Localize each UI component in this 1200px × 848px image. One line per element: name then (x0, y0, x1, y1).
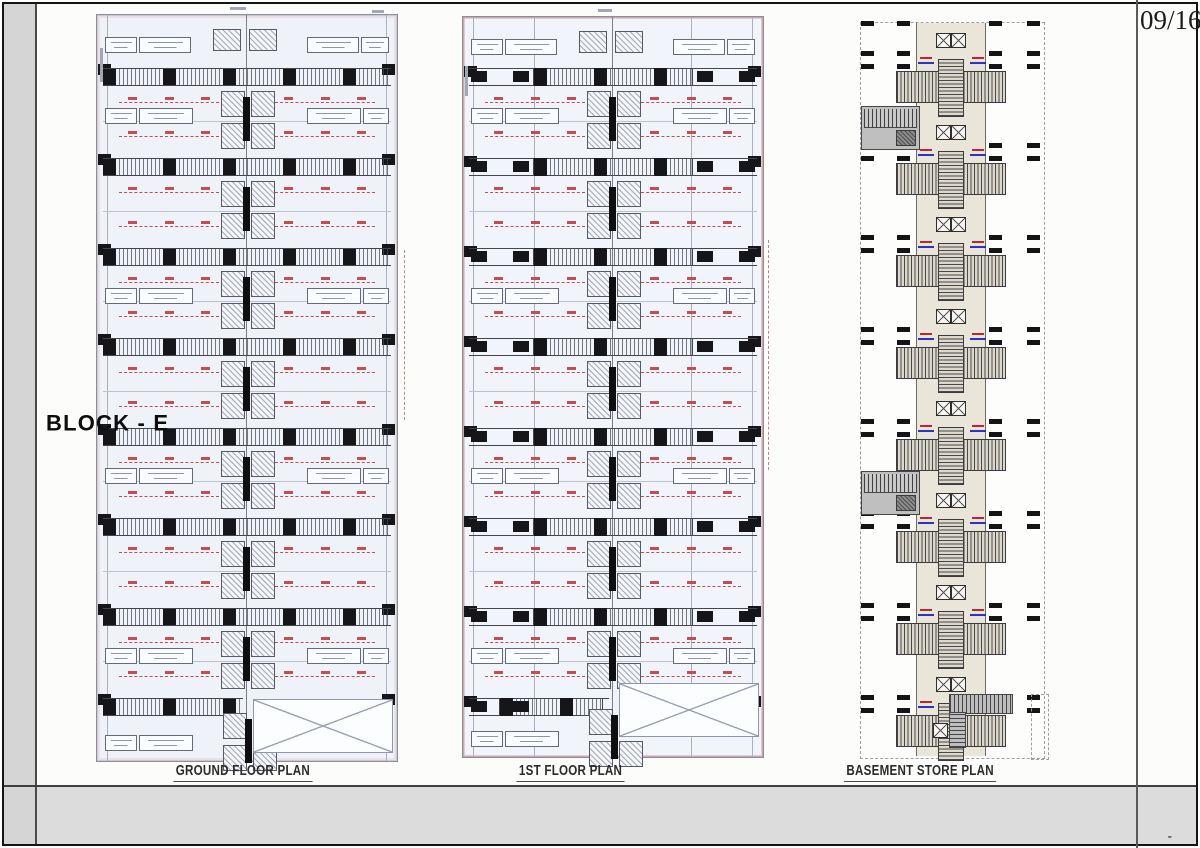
unit-label-box (139, 648, 193, 664)
stair-box (587, 271, 611, 297)
stair-core-cluster (587, 541, 639, 597)
stair-box (587, 181, 611, 207)
column-blob (471, 701, 487, 712)
stair-box (251, 393, 275, 419)
column-blob (513, 161, 529, 172)
unit-label-box (105, 648, 137, 664)
lift-x-box (951, 125, 966, 140)
stair-box (251, 573, 275, 599)
lift-x-box (936, 33, 951, 48)
unit-label-box (307, 37, 359, 53)
lift-x-box (951, 493, 966, 508)
wing-stair-run (864, 109, 917, 128)
core-wall (609, 187, 616, 231)
dimension-line (641, 366, 741, 373)
stair-box (617, 91, 641, 117)
wall-hatch (533, 248, 693, 266)
stair-core-cluster (221, 91, 273, 147)
stair-box (251, 303, 275, 329)
store-module (896, 209, 1004, 301)
column-tick (1027, 21, 1040, 26)
unit-label-box (471, 468, 503, 484)
stair-box (587, 483, 611, 509)
unit-label-box (729, 468, 755, 484)
wall-hatch (533, 518, 693, 536)
unit-label-box (139, 735, 193, 751)
dimension-line (485, 276, 585, 283)
core-wall (609, 547, 616, 591)
unit-label-box (673, 108, 727, 124)
lift-x-box (933, 723, 948, 738)
page-number-tick: - (1168, 828, 1172, 844)
annotation-text-blob (372, 10, 384, 13)
void-cross-area (619, 683, 759, 737)
dimension-line (641, 456, 741, 463)
unit-label-box (729, 648, 755, 664)
dimension-line (641, 130, 741, 137)
stair-box (587, 451, 611, 477)
stair-box (617, 303, 641, 329)
unit-label-box (105, 288, 137, 304)
core-wall (243, 97, 250, 141)
store-label (918, 609, 934, 616)
stair-box (587, 91, 611, 117)
basement-store-plan-caption: BASEMENT STORE PLAN (843, 763, 998, 780)
store-label (918, 701, 934, 708)
stair-box (221, 181, 245, 207)
stair-wing (861, 471, 920, 515)
wall-band (469, 698, 609, 716)
stair-cross-vertical (938, 151, 964, 209)
dimension-line (485, 96, 585, 103)
stair-box (617, 483, 641, 509)
basement-store-plan (860, 22, 1045, 759)
lift-x-box (936, 677, 951, 692)
core-wall (243, 277, 250, 321)
column-blob (513, 341, 529, 352)
lift-x-box (951, 33, 966, 48)
lift-x-box (936, 585, 951, 600)
dimension-line (485, 130, 585, 137)
stair-box (587, 573, 611, 599)
unit-label-box (471, 39, 503, 55)
unit-label-box (673, 468, 727, 484)
column-blob (471, 251, 487, 262)
stair-box (587, 213, 611, 239)
column-blob (739, 341, 755, 352)
hatched-wall-band (103, 608, 391, 626)
stair-box (221, 573, 245, 599)
dimension-line (641, 546, 741, 553)
column-blob (471, 431, 487, 442)
dimension-line (485, 546, 585, 553)
unit-label-box (673, 288, 727, 304)
stair-box (251, 271, 275, 297)
lift-x-box (936, 309, 951, 324)
wall-hatch (533, 338, 693, 356)
store-label (918, 241, 934, 248)
first-floor-plan (462, 16, 764, 758)
stair-box (223, 713, 247, 739)
stair-box (587, 393, 611, 419)
column-blob (739, 431, 755, 442)
stair-box (251, 483, 275, 509)
column-tick (861, 21, 874, 26)
dimension-line (119, 580, 219, 587)
ground-floor-plan (96, 14, 398, 762)
column-blob (471, 161, 487, 172)
hatched-wall-band (103, 518, 391, 536)
stair-box (587, 303, 611, 329)
sheet-scan: GROUND FLOOR PLAN 1ST FLOOR PLAN BASEMEN… (0, 0, 1200, 848)
stair-core-cluster (221, 451, 273, 507)
stair-box (587, 663, 611, 689)
lift-x-box (936, 125, 951, 140)
unit-label-box (505, 648, 559, 664)
column-blob (697, 251, 713, 262)
stair-box (251, 213, 275, 239)
wall-band (469, 158, 757, 176)
column-blob (739, 161, 755, 172)
dimension-line (641, 186, 741, 193)
dimension-line (275, 310, 375, 317)
unit-label-box (729, 108, 755, 124)
stair-box (221, 91, 245, 117)
stair-box (221, 541, 245, 567)
dimension-line (275, 580, 375, 587)
store-module (896, 577, 1004, 669)
dimension-line (485, 490, 585, 497)
unit-label-box (729, 288, 755, 304)
column-blob (513, 431, 529, 442)
dimension-line (275, 490, 375, 497)
unit-label-box (471, 731, 503, 747)
wing-duct-box (896, 495, 916, 511)
grid-guide-line (691, 17, 692, 757)
unit-label-box (361, 37, 389, 53)
first-floor-plan-caption: 1ST FLOOR PLAN (498, 763, 643, 780)
vertical-dimension-string (768, 240, 769, 470)
wall-hatch (533, 158, 693, 176)
stair-box (221, 213, 245, 239)
block-title: BLOCK - E (46, 410, 169, 436)
store-label (918, 57, 934, 64)
core-wall (243, 367, 250, 411)
unit-label-box (505, 468, 559, 484)
dimension-line (485, 366, 585, 373)
lift-x-box (951, 585, 966, 600)
stair-box (587, 123, 611, 149)
store-module (896, 25, 1004, 117)
unit-label-box (139, 288, 193, 304)
dimension-line (275, 186, 375, 193)
stair-core-cluster (587, 361, 639, 417)
lift-x-box (951, 309, 966, 324)
dimension-line (485, 400, 585, 407)
dimension-line (275, 456, 375, 463)
stair-core-cluster (221, 271, 273, 327)
store-label (970, 241, 986, 248)
stair-wing (861, 106, 920, 150)
column-blob (513, 521, 529, 532)
core-wall (609, 277, 616, 321)
ground-floor-plan-caption: GROUND FLOOR PLAN (170, 763, 315, 780)
stair-box (251, 631, 275, 657)
stair-box (251, 663, 275, 689)
unit-label-box (105, 37, 137, 53)
stair-box (617, 631, 641, 657)
dimension-line (119, 670, 219, 677)
column-blob (739, 611, 755, 622)
unit-label-box (105, 735, 137, 751)
dimension-line (119, 490, 219, 497)
unit-label-box (363, 648, 389, 664)
dimension-line (119, 366, 219, 373)
stair-box (221, 303, 245, 329)
stair-box (221, 123, 245, 149)
stair-box (617, 213, 641, 239)
unit-label-box (363, 288, 389, 304)
dimension-line (641, 276, 741, 283)
stair-cross-vertical (938, 427, 964, 485)
unit-label-box (363, 468, 389, 484)
stair-cross-vertical (938, 59, 964, 117)
dimension-line (119, 276, 219, 283)
unit-label-box (505, 39, 557, 55)
dimension-line (641, 636, 741, 643)
stair-cross-vertical (938, 243, 964, 301)
stair-box (617, 451, 641, 477)
wing-stair-run (864, 474, 917, 493)
stair-box (617, 393, 641, 419)
core-wall (243, 547, 250, 591)
dimension-line (275, 96, 375, 103)
unit-label-box (673, 648, 727, 664)
column-blob (697, 431, 713, 442)
store-module (896, 301, 1004, 393)
unit-label-box (363, 108, 389, 124)
unit-label-box (139, 468, 193, 484)
hatched-wall-band (103, 338, 391, 356)
dimension-line (119, 400, 219, 407)
title-block-top-rule (4, 785, 1196, 787)
column-blob (697, 341, 713, 352)
core-wall (611, 715, 618, 759)
unit-label-box (105, 108, 137, 124)
hatched-wall-band (103, 158, 391, 176)
unit-label-box (471, 108, 503, 124)
dimension-line (641, 580, 741, 587)
unit-label-box (505, 108, 559, 124)
store-label (970, 609, 986, 616)
dimension-line (485, 670, 585, 677)
store-label (970, 57, 986, 64)
annotation-text-blob (100, 48, 103, 82)
column-blob (739, 251, 755, 262)
unit-label-box (139, 108, 193, 124)
stair-box (251, 181, 275, 207)
unit-label-box (307, 288, 361, 304)
store-label (918, 425, 934, 432)
stair-box (221, 361, 245, 387)
lift-x-box (936, 217, 951, 232)
stair-cross-vertical (938, 611, 964, 669)
unit-label-box (307, 648, 361, 664)
stair-box (213, 29, 241, 51)
basement-stair-landing (949, 694, 1013, 714)
dimension-line (119, 220, 219, 227)
dimension-line (641, 310, 741, 317)
stair-box (251, 541, 275, 567)
dimension-line (119, 546, 219, 553)
store-label (918, 517, 934, 524)
stair-core-cluster (221, 181, 273, 237)
hatched-wall-band (103, 698, 243, 716)
dimension-line (119, 130, 219, 137)
grid-guide-line (534, 17, 535, 757)
stair-box (587, 361, 611, 387)
vertical-dimension-string (404, 250, 405, 420)
void-cross-area (253, 699, 393, 753)
dimension-line (641, 670, 741, 677)
unit-label-box (471, 648, 503, 664)
wall-band (469, 518, 757, 536)
hatched-wall-band (103, 248, 391, 266)
unit-label-box (505, 731, 559, 747)
column-blob (697, 161, 713, 172)
wall-band (469, 608, 757, 626)
hatched-wall-band (103, 68, 391, 86)
boundary-step (1031, 694, 1049, 760)
stair-box (617, 123, 641, 149)
stair-core-cluster (587, 451, 639, 507)
dimension-line (275, 366, 375, 373)
dimension-line (275, 546, 375, 553)
annotation-text-blob (598, 9, 612, 12)
unit-label-box (471, 288, 503, 304)
stair-box (221, 393, 245, 419)
stair-core-cluster (587, 181, 639, 237)
lift-x-box (936, 493, 951, 508)
column-blob (513, 251, 529, 262)
dimension-line (641, 96, 741, 103)
dimension-line (485, 186, 585, 193)
unit-label-box (505, 288, 559, 304)
stair-box (221, 451, 245, 477)
stair-box (617, 573, 641, 599)
stair-box (221, 631, 245, 657)
dimension-line (485, 220, 585, 227)
lift-x-box (951, 401, 966, 416)
stair-box (617, 541, 641, 567)
title-block (4, 787, 1196, 844)
store-label (970, 425, 986, 432)
dimension-line (641, 400, 741, 407)
column-blob (471, 521, 487, 532)
dimension-line (275, 276, 375, 283)
column-blob (471, 341, 487, 352)
column-blob (697, 521, 713, 532)
core-wall (609, 457, 616, 501)
core-wall (609, 97, 616, 141)
column-tick-column (1027, 23, 1040, 758)
caption-text: GROUND FLOOR PLAN (173, 763, 312, 782)
lift-x-box (951, 677, 966, 692)
stair-box (617, 361, 641, 387)
binding-margin-strip (4, 4, 37, 844)
page-number: 09/16 (1140, 5, 1198, 36)
dimension-line (119, 96, 219, 103)
wall-hatch (533, 608, 693, 626)
unit-label-box (307, 468, 361, 484)
core-wall (245, 719, 252, 763)
stair-box (251, 91, 275, 117)
store-label (970, 149, 986, 156)
annotation-text-blob (230, 7, 246, 10)
wing-duct-box (896, 130, 916, 146)
stair-box (251, 451, 275, 477)
core-wall (243, 637, 250, 681)
column-tick-column (464, 17, 477, 757)
stair-core-cluster (221, 361, 273, 417)
caption-text: BASEMENT STORE PLAN (844, 763, 996, 782)
stair-box (587, 631, 611, 657)
store-label (918, 149, 934, 156)
wall-band (469, 248, 757, 266)
stair-core-cluster (221, 631, 273, 687)
stair-box (615, 31, 643, 53)
dimension-line (275, 670, 375, 677)
store-label (970, 517, 986, 524)
stair-box (251, 123, 275, 149)
caption-text: 1ST FLOOR PLAN (516, 763, 624, 782)
core-wall (243, 187, 250, 231)
dimension-line (119, 636, 219, 643)
title-block-divider (1136, 0, 1138, 848)
dimension-line (275, 636, 375, 643)
dimension-line (641, 220, 741, 227)
stair-core-cluster (221, 541, 273, 597)
unit-label-box (307, 108, 361, 124)
column-blob (739, 521, 755, 532)
dimension-line (485, 636, 585, 643)
stair-box (587, 541, 611, 567)
lift-x-box (951, 217, 966, 232)
core-wall (609, 367, 616, 411)
stair-cross-vertical (938, 335, 964, 393)
wall-band (469, 338, 757, 356)
dimension-line (119, 310, 219, 317)
lift-x-box (936, 401, 951, 416)
column-blob (471, 611, 487, 622)
unit-label-box (139, 37, 191, 53)
stair-box (251, 361, 275, 387)
unit-label-box (105, 468, 137, 484)
unit-label-box (727, 39, 755, 55)
dimension-line (119, 186, 219, 193)
wall-hatch (533, 428, 693, 446)
column-tick-column (748, 17, 761, 757)
annotation-text-blob (465, 66, 468, 96)
column-blob (513, 701, 529, 712)
column-blob (471, 71, 487, 82)
wall-band (469, 428, 757, 446)
stair-core-cluster (587, 91, 639, 147)
stair-cross-vertical (938, 519, 964, 577)
store-label (970, 333, 986, 340)
dimension-line (275, 400, 375, 407)
wall-band (469, 68, 757, 86)
